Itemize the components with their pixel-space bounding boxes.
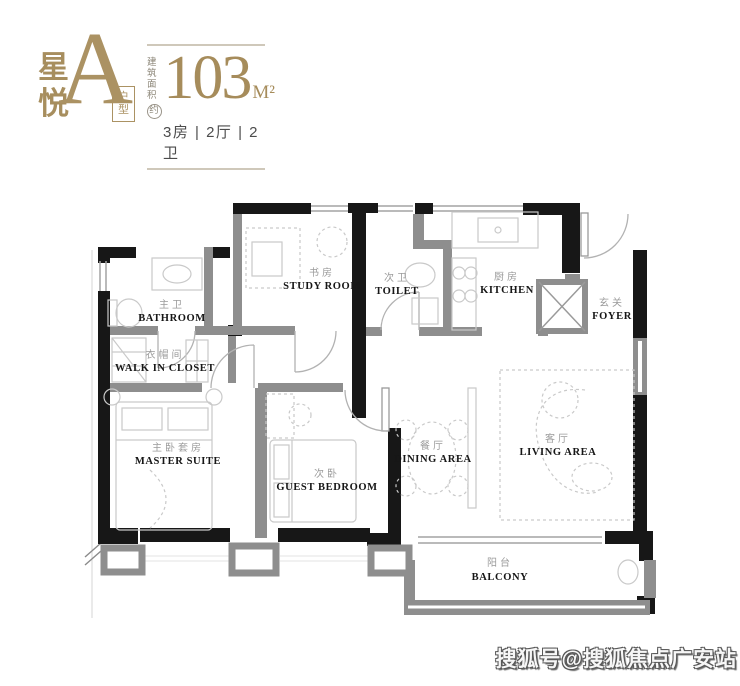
svg-text:主卧套房: 主卧套房: [152, 441, 204, 454]
svg-text:BALCONY: BALCONY: [472, 572, 529, 583]
svg-text:MASTER SUITE: MASTER SUITE: [135, 456, 221, 467]
room-label-study: 书房 STUDY ROOM: [283, 266, 361, 292]
room-label-living: 客厅 LIVING AREA: [520, 432, 597, 458]
svg-text:TOILET: TOILET: [375, 286, 419, 297]
room-label-foyer: 玄关 FOYER: [592, 296, 632, 322]
svg-text:WALK IN CLOSET: WALK IN CLOSET: [115, 363, 215, 374]
room-label-master-suite: 主卧套房 MASTER SUITE: [135, 441, 221, 467]
floorplan-drawing: 主卫 BATHROOM 衣帽间 WALK IN CLOSET 书房 STUDY …: [0, 0, 740, 686]
svg-text:KITCHEN: KITCHEN: [480, 285, 534, 296]
watermark: 搜狐号@搜狐焦点广安站: [496, 643, 737, 673]
svg-text:STUDY ROOM: STUDY ROOM: [283, 281, 361, 292]
floorplan-page: 星悦 A 户型 建筑 面积 约 103 M² 3房 | 2厅 | 2卫: [0, 0, 740, 686]
bay-windows: [104, 546, 409, 573]
svg-text:BATHROOM: BATHROOM: [138, 313, 206, 324]
svg-text:DINING AREA: DINING AREA: [394, 454, 472, 465]
svg-text:衣帽间: 衣帽间: [146, 348, 185, 361]
svg-text:餐厅: 餐厅: [420, 439, 446, 452]
room-label-toilet: 次卫 TOILET: [375, 271, 419, 297]
room-label-kitchen: 厨房 KITCHEN: [480, 270, 534, 296]
svg-text:阳台: 阳台: [487, 556, 513, 569]
svg-text:客厅: 客厅: [545, 432, 571, 445]
svg-text:GUEST BEDROOM: GUEST BEDROOM: [276, 482, 377, 493]
svg-text:LIVING AREA: LIVING AREA: [520, 447, 597, 458]
svg-text:主卫: 主卫: [159, 299, 185, 311]
svg-text:次卧: 次卧: [314, 467, 340, 480]
svg-text:次卫: 次卫: [384, 271, 410, 284]
svg-text:玄关: 玄关: [599, 296, 625, 309]
svg-text:书房: 书房: [309, 266, 335, 279]
svg-text:厨房: 厨房: [494, 270, 520, 283]
room-label-dining: 餐厅 DINING AREA: [394, 439, 472, 465]
shaft: [539, 282, 585, 331]
svg-text:FOYER: FOYER: [592, 311, 632, 322]
room-label-balcony: 阳台 BALCONY: [472, 556, 529, 583]
room-label-bathroom: 主卫 BATHROOM: [138, 299, 206, 324]
